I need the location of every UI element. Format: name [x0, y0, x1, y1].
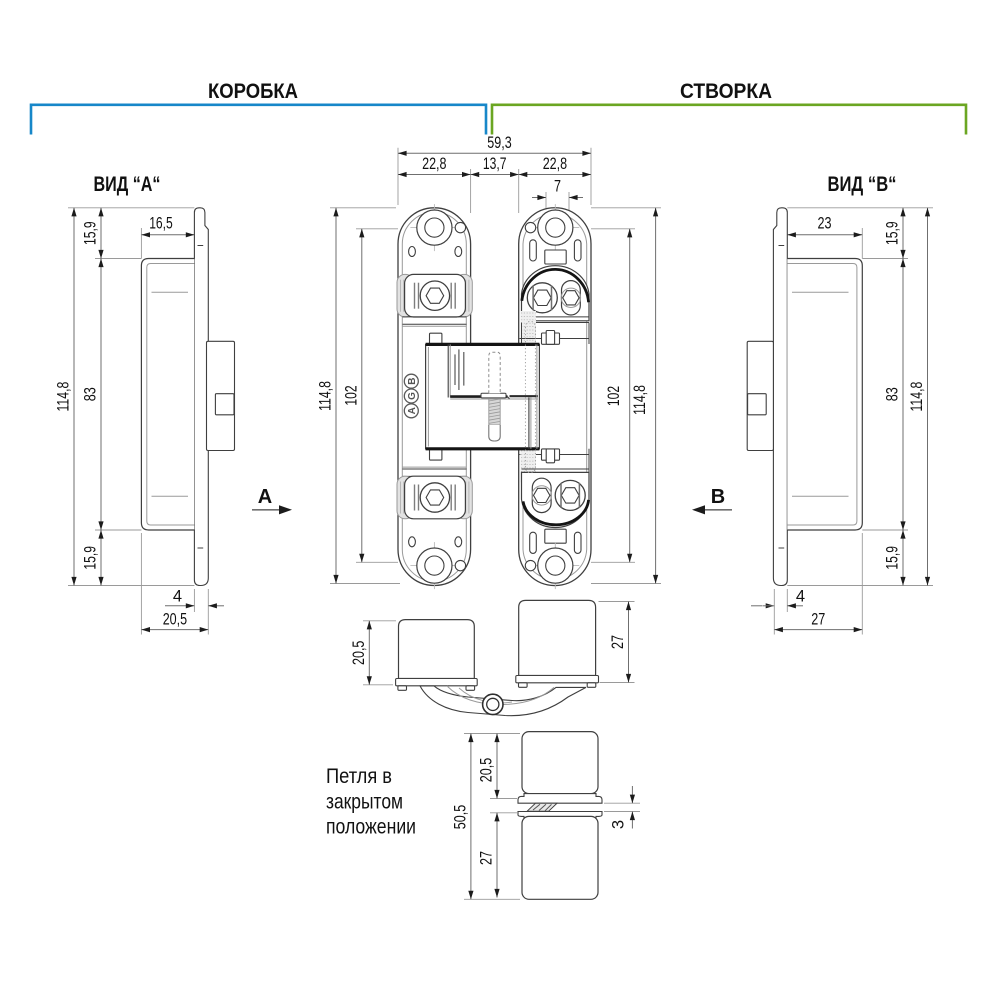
svg-text:23: 23 [818, 215, 832, 233]
svg-text:4: 4 [796, 588, 805, 606]
svg-text:4: 4 [173, 588, 182, 606]
svg-text:20,5: 20,5 [163, 610, 187, 628]
svg-text:СТВОРКА: СТВОРКА [680, 79, 772, 103]
svg-text:114,8: 114,8 [631, 385, 649, 415]
svg-text:27: 27 [478, 851, 496, 865]
svg-text:7: 7 [554, 178, 561, 196]
svg-text:G: G [407, 392, 418, 400]
svg-text:А: А [258, 486, 272, 508]
svg-text:20,5: 20,5 [350, 641, 368, 665]
svg-text:закрытом: закрытом [326, 790, 403, 814]
svg-text:B: B [407, 378, 418, 385]
svg-text:83: 83 [82, 387, 100, 401]
svg-text:102: 102 [605, 386, 623, 406]
svg-text:3: 3 [610, 820, 628, 829]
svg-text:15,9: 15,9 [82, 221, 100, 245]
svg-text:В: В [711, 486, 725, 508]
svg-text:A: A [407, 407, 418, 414]
svg-text:15,9: 15,9 [884, 221, 902, 245]
svg-text:16,5: 16,5 [149, 215, 173, 233]
svg-text:27: 27 [811, 610, 825, 628]
svg-text:83: 83 [884, 387, 902, 401]
svg-text:50,5: 50,5 [451, 805, 469, 829]
svg-text:КОРОБКА: КОРОБКА [208, 79, 298, 103]
svg-text:102: 102 [342, 385, 360, 405]
svg-text:13,7: 13,7 [483, 155, 507, 173]
svg-text:ВИД “В“: ВИД “В“ [828, 173, 897, 196]
svg-text:15,9: 15,9 [884, 546, 902, 570]
svg-text:22,8: 22,8 [422, 155, 446, 173]
svg-text:15,9: 15,9 [82, 546, 100, 570]
svg-text:114,8: 114,8 [317, 381, 335, 411]
svg-text:Петля в: Петля в [326, 764, 392, 788]
svg-text:114,8: 114,8 [55, 382, 73, 412]
svg-text:114,8: 114,8 [908, 382, 926, 412]
svg-text:ВИД “А“: ВИД “А“ [94, 173, 161, 196]
svg-text:20,5: 20,5 [478, 758, 496, 782]
svg-text:59,3: 59,3 [487, 134, 511, 152]
svg-text:22,8: 22,8 [543, 155, 567, 173]
svg-text:положении: положении [326, 815, 416, 839]
svg-text:27: 27 [609, 635, 627, 649]
